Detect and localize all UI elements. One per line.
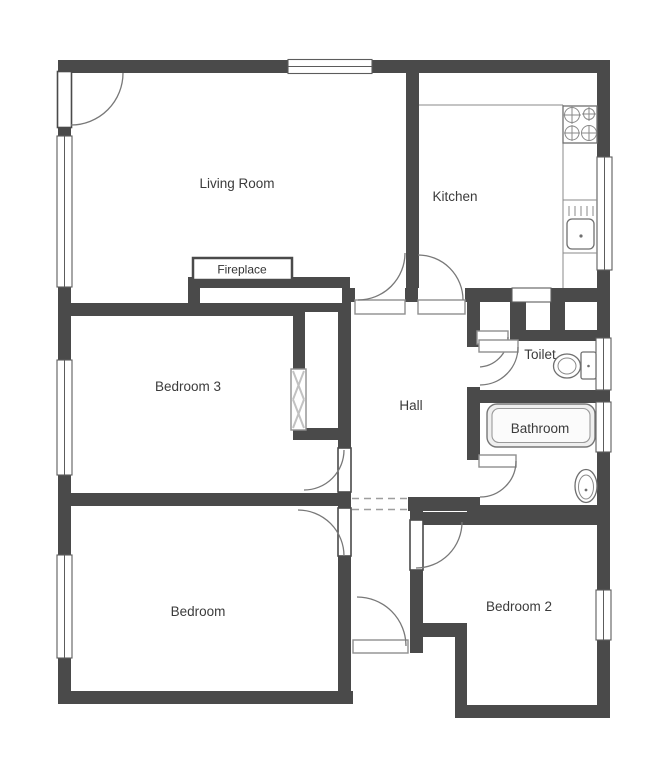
bathroom-door [467, 455, 516, 497]
window-bedroom3-left [57, 360, 72, 475]
window-toilet-right [596, 338, 611, 390]
bathroom-label: Bathroom [511, 421, 570, 436]
bedroom2-door [410, 520, 462, 570]
bedroom2-label: Bedroom 2 [486, 599, 552, 614]
window-kitchen-right [597, 157, 612, 270]
toilet-label: Toilet [524, 347, 556, 362]
walls [58, 60, 610, 718]
living-room-label: Living Room [199, 176, 274, 191]
floor-plan: Fireplace Living Room Kitchen Bedroom 3 … [0, 0, 670, 776]
stove-icon [563, 106, 597, 143]
wardrobe-icon [291, 369, 306, 430]
doors [58, 72, 519, 654]
kitchen-label: Kitchen [432, 189, 477, 204]
hall-opening-dashed [352, 499, 410, 510]
window-living-left [57, 136, 72, 287]
bedroom-door [298, 508, 351, 556]
bedroom-label: Bedroom [171, 604, 226, 619]
serving-hatch [512, 288, 551, 302]
front-door [353, 597, 408, 653]
hall-label: Hall [399, 398, 422, 413]
chimney-breast [188, 277, 350, 312]
washbasin-icon [575, 470, 597, 503]
kitchen-door [418, 255, 465, 314]
bedroom3-label: Bedroom 3 [155, 379, 221, 394]
bedroom3-door [304, 448, 351, 492]
living-room-door [355, 253, 405, 314]
window-bedroom2-right [596, 590, 611, 640]
window-bedroom-left [57, 555, 72, 658]
toilet-icon [554, 352, 597, 379]
kitchen-sink-icon [567, 206, 594, 249]
fireplace: Fireplace [193, 258, 292, 280]
floor-plan-page: Fireplace Living Room Kitchen Bedroom 3 … [0, 0, 670, 776]
cupboard-door [477, 302, 510, 367]
entrance-door [58, 72, 124, 128]
window-bathroom-right [596, 402, 611, 452]
window-living-top [288, 60, 372, 74]
fireplace-label: Fireplace [217, 263, 267, 277]
